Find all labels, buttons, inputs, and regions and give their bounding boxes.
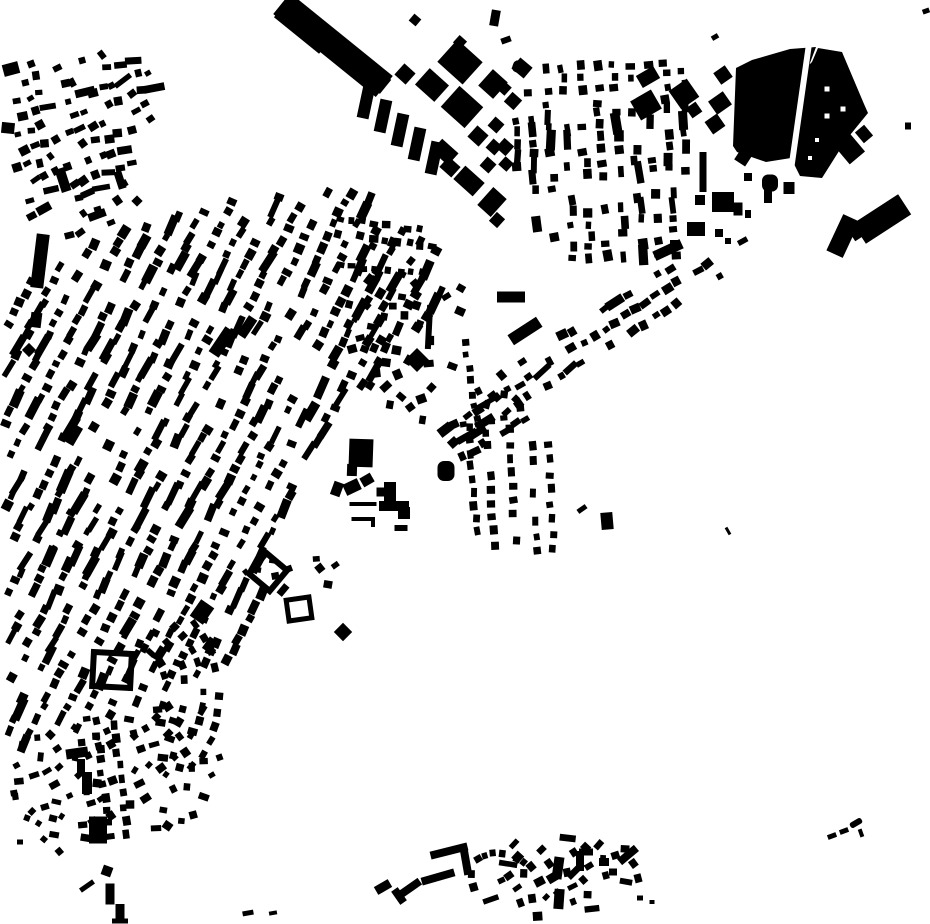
housing-grid-bottomleft-east <box>124 701 224 832</box>
housing-grid-ne-corridor <box>436 236 748 461</box>
row-housing-layer <box>92 216 557 840</box>
figure-ground-map <box>0 0 930 924</box>
housing-grid-topleft-cluster <box>11 50 165 240</box>
housing-grid-top-center-grid <box>512 59 690 265</box>
housing-grid-left-diagonal-fabric <box>0 187 446 754</box>
map-viewport <box>0 0 930 924</box>
housing-grid-center-scatter <box>343 256 466 425</box>
